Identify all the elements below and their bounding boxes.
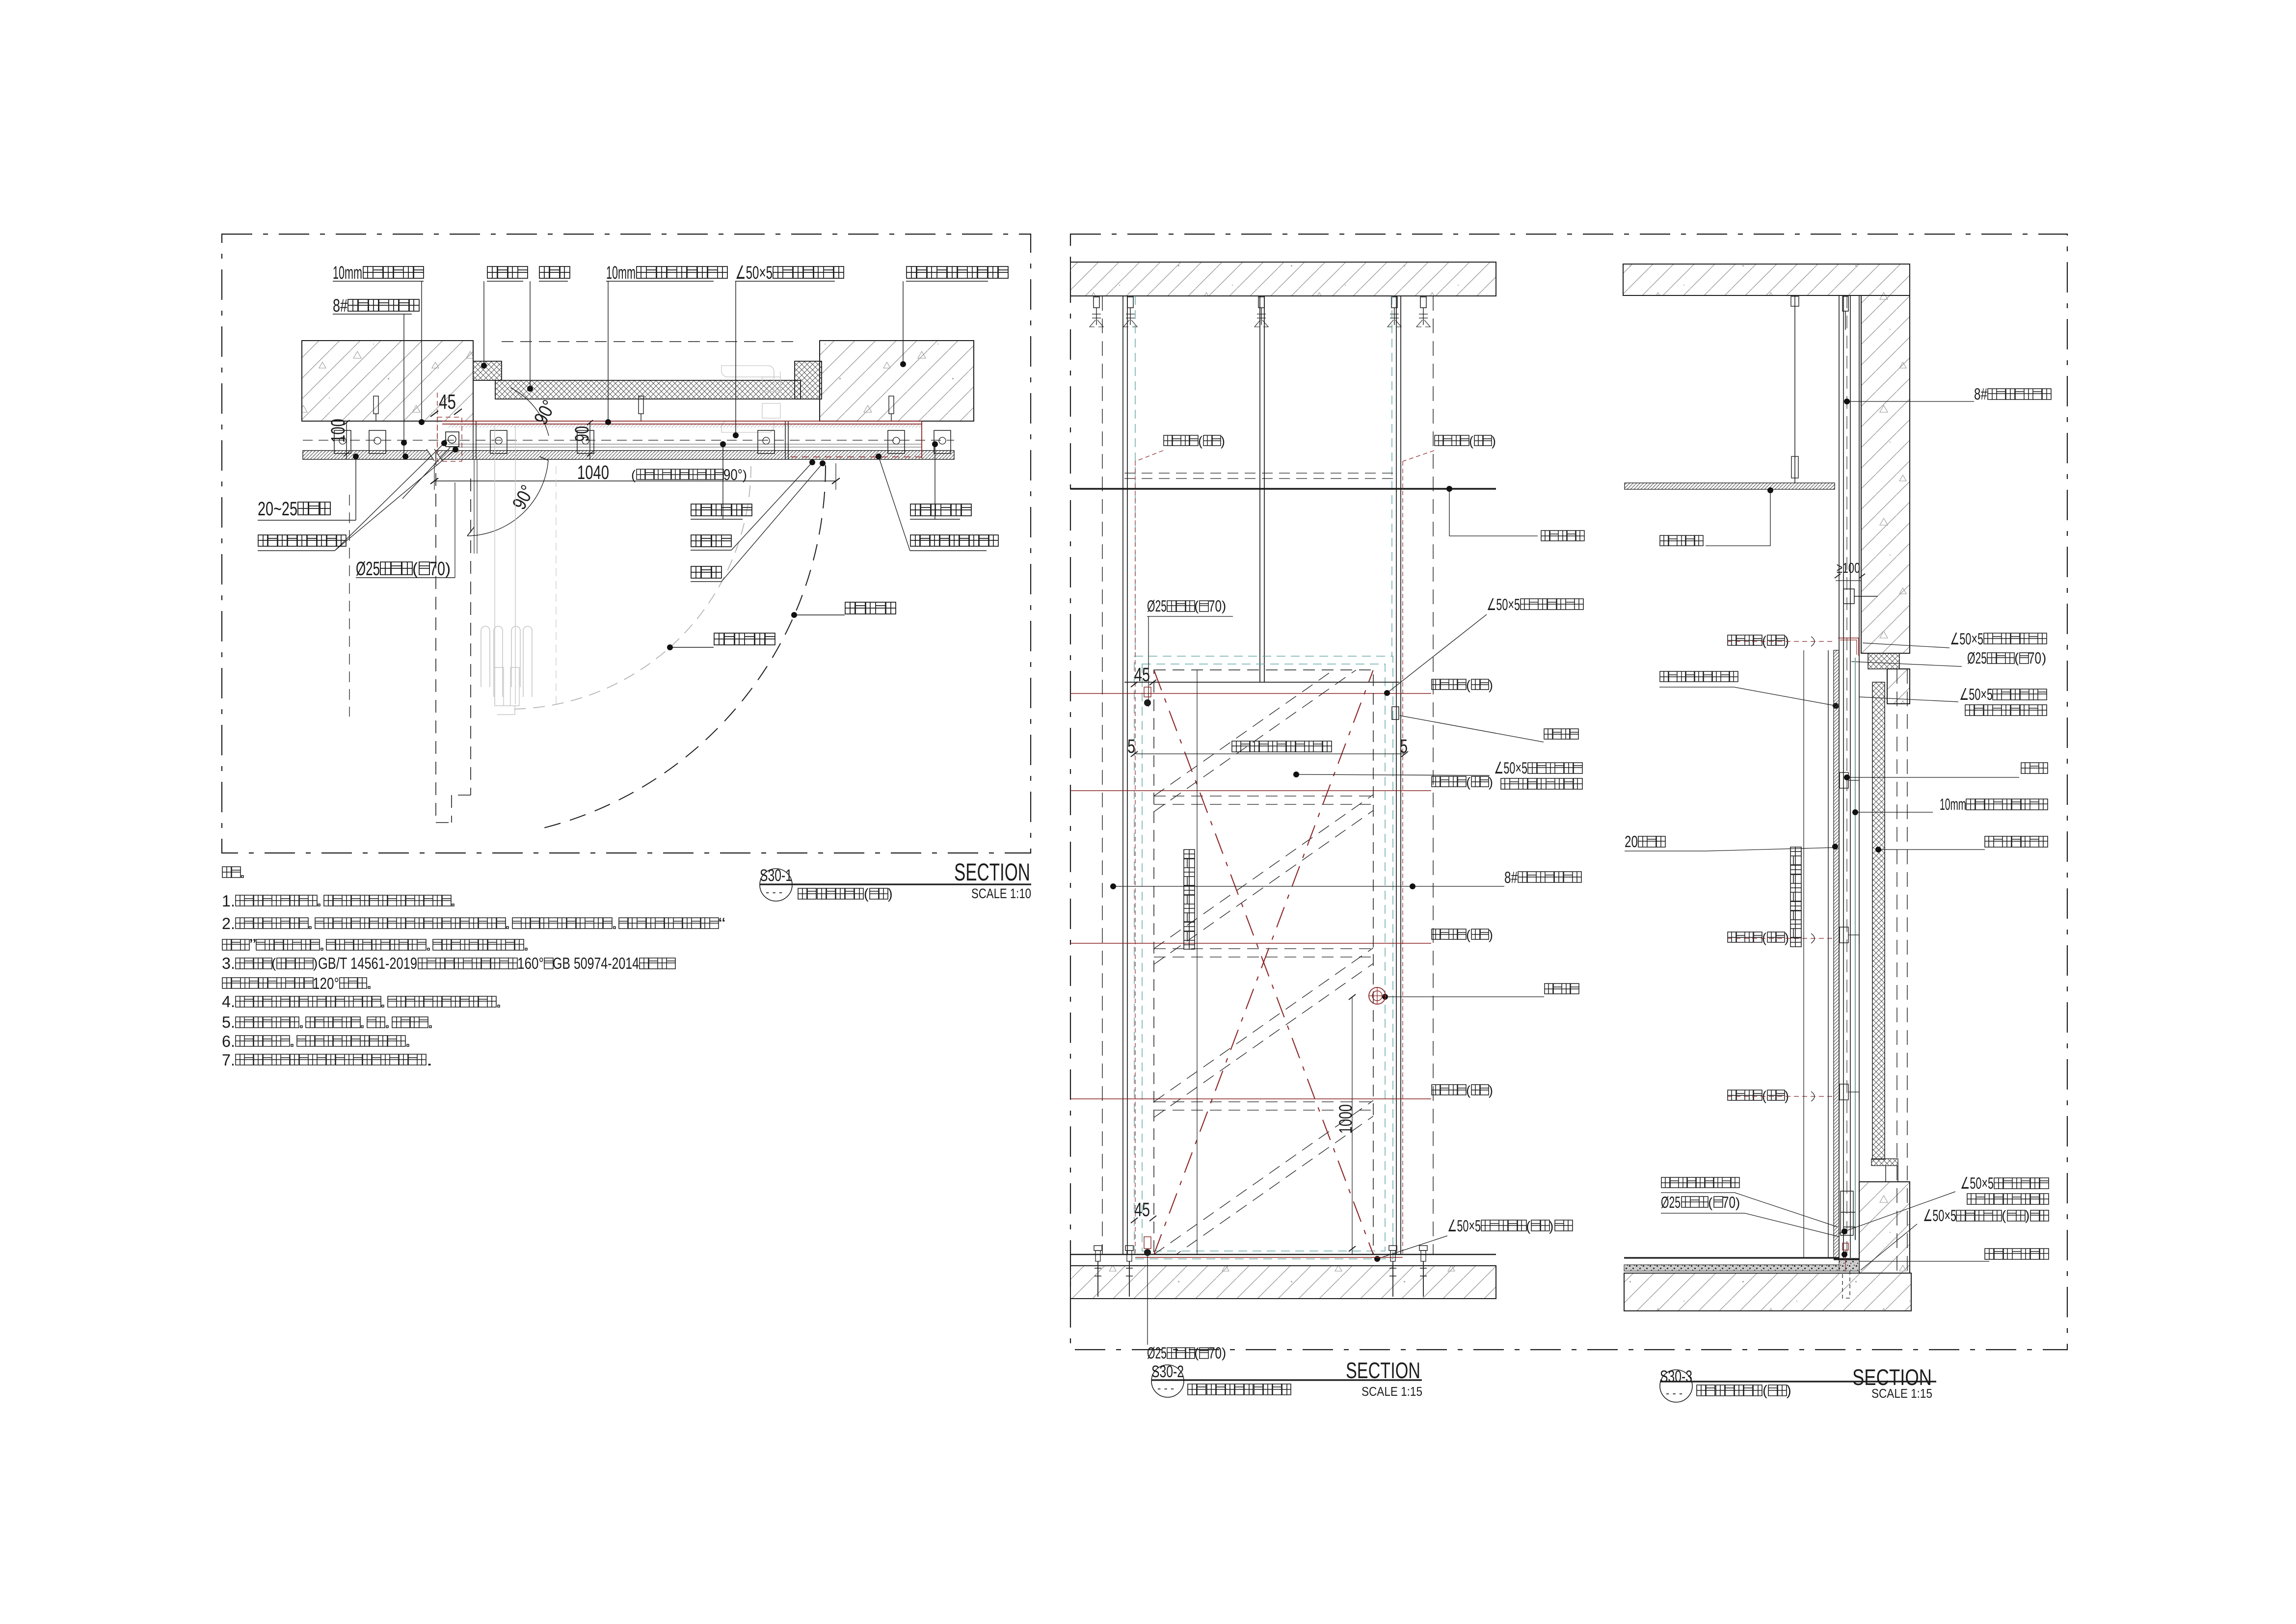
svg-text:(: ( <box>412 560 418 578</box>
svg-text:): ) <box>1785 1089 1789 1103</box>
svg-text:): ) <box>2025 1208 2029 1223</box>
svg-text:): ) <box>1222 598 1226 613</box>
svg-text:): ) <box>1489 775 1493 790</box>
svg-text:(: ( <box>1762 1383 1767 1399</box>
svg-text:GB 50974-2014: GB 50974-2014 <box>553 954 639 972</box>
svg-text:): ) <box>1549 1219 1553 1234</box>
svg-text:7.: 7. <box>222 1051 235 1069</box>
svg-text:): ) <box>1735 1195 1740 1210</box>
svg-text:): ) <box>445 560 451 578</box>
svg-text:(: ( <box>1466 928 1470 942</box>
svg-text:70: 70 <box>429 558 445 580</box>
svg-text:): ) <box>1787 1383 1791 1399</box>
svg-text:): ) <box>1489 928 1493 942</box>
svg-text:3.: 3. <box>222 954 235 972</box>
svg-text:): ) <box>1489 678 1493 692</box>
svg-text:SECTION: SECTION <box>1346 1358 1420 1383</box>
svg-text:): ) <box>888 886 893 902</box>
svg-text:): ) <box>743 468 747 482</box>
svg-text:Ø25: Ø25 <box>1147 597 1167 615</box>
svg-text:(: ( <box>1194 598 1199 613</box>
svg-text:- - -: - - - <box>1666 1387 1682 1399</box>
svg-text:”: ” <box>249 935 256 954</box>
svg-text:45: 45 <box>1134 1199 1150 1221</box>
svg-text:): ) <box>1785 931 1789 945</box>
svg-text:70: 70 <box>1722 1193 1735 1211</box>
svg-text:1040: 1040 <box>577 462 609 483</box>
svg-text:∠50×5: ∠50×5 <box>735 263 773 283</box>
svg-text:(: ( <box>1708 1195 1713 1210</box>
svg-text:2.: 2. <box>222 914 235 932</box>
svg-text:SECTION: SECTION <box>954 858 1030 886</box>
svg-text:): ) <box>1489 1083 1493 1098</box>
svg-text:100: 100 <box>327 419 349 443</box>
svg-text:∠50×5: ∠50×5 <box>1960 1174 1994 1192</box>
svg-text:(: ( <box>1194 1345 1199 1360</box>
svg-text:10mm: 10mm <box>333 263 362 283</box>
svg-text:∠50×5: ∠50×5 <box>1923 1206 1956 1225</box>
svg-text:(: ( <box>1198 434 1202 449</box>
svg-text:1000: 1000 <box>1335 1104 1356 1134</box>
svg-text:70: 70 <box>1208 1344 1222 1362</box>
svg-text:20: 20 <box>1625 832 1638 851</box>
svg-text:SCALE 1:15: SCALE 1:15 <box>1362 1384 1422 1399</box>
svg-text:(: ( <box>864 886 869 902</box>
svg-text:): ) <box>2042 650 2046 666</box>
svg-text:Ø25: Ø25 <box>1147 1344 1167 1362</box>
svg-text:): ) <box>1221 434 1225 449</box>
svg-text:4.: 4. <box>222 992 235 1011</box>
svg-text:GB/T 14561-2019: GB/T 14561-2019 <box>318 954 417 972</box>
svg-text:): ) <box>1222 1345 1226 1360</box>
svg-text:8#: 8# <box>1974 385 1987 403</box>
svg-text:S30-3: S30-3 <box>1660 1367 1692 1386</box>
svg-text:1.: 1. <box>222 892 235 910</box>
svg-text:(: ( <box>2014 650 2019 666</box>
svg-text:.: . <box>426 1051 433 1069</box>
svg-text:∠50×5: ∠50×5 <box>1950 630 1983 648</box>
svg-text:Ø25: Ø25 <box>1661 1193 1681 1211</box>
svg-text:5.: 5. <box>222 1013 235 1031</box>
svg-text:SCALE 1:10: SCALE 1:10 <box>971 886 1031 901</box>
svg-text:Ø25: Ø25 <box>356 558 380 580</box>
svg-text:70: 70 <box>1208 597 1222 615</box>
svg-text:∠50×5: ∠50×5 <box>1959 685 1993 703</box>
svg-text:- - -: - - - <box>766 886 782 898</box>
svg-text:20~25: 20~25 <box>258 498 297 520</box>
svg-text:45: 45 <box>439 390 456 413</box>
svg-text:5: 5 <box>1127 736 1135 757</box>
svg-text:(: ( <box>1469 434 1473 449</box>
svg-text:): ) <box>1492 434 1496 449</box>
svg-text:(: ( <box>271 956 276 971</box>
svg-text:6.: 6. <box>222 1032 235 1050</box>
svg-text:(: ( <box>631 468 636 482</box>
svg-text:): ) <box>1785 634 1789 648</box>
svg-text:8#: 8# <box>333 295 347 316</box>
svg-text:SCALE 1:15: SCALE 1:15 <box>1871 1386 1932 1401</box>
svg-text:∠50×5: ∠50×5 <box>1494 759 1527 777</box>
svg-text:(: ( <box>1762 634 1766 648</box>
svg-text:S30-2: S30-2 <box>1151 1362 1184 1381</box>
svg-text:): ) <box>313 956 318 971</box>
svg-text:(: ( <box>1762 931 1766 945</box>
svg-text:90: 90 <box>571 426 593 442</box>
svg-text:90°: 90° <box>723 466 743 483</box>
svg-text:8#: 8# <box>1504 868 1518 886</box>
svg-text:- - -: - - - <box>1157 1382 1174 1394</box>
svg-text:160°: 160° <box>517 954 544 972</box>
svg-text:∠50×5: ∠50×5 <box>1447 1217 1481 1235</box>
svg-text:70: 70 <box>2028 649 2041 667</box>
svg-text:(: ( <box>1466 1083 1470 1098</box>
svg-text:120°: 120° <box>313 974 339 992</box>
svg-text:(: ( <box>1466 678 1470 692</box>
svg-text:10mm: 10mm <box>1940 795 1966 813</box>
svg-text:5: 5 <box>1400 736 1408 757</box>
svg-text:S30-1: S30-1 <box>760 866 792 885</box>
svg-text:“: “ <box>719 914 725 932</box>
svg-text:(: ( <box>1762 1089 1766 1103</box>
svg-text:(: ( <box>1466 775 1470 790</box>
svg-text:∠50×5: ∠50×5 <box>1487 595 1520 613</box>
svg-text:(: ( <box>1526 1219 1531 1234</box>
svg-text:Ø25: Ø25 <box>1967 649 1987 667</box>
svg-text:10mm: 10mm <box>606 263 636 283</box>
svg-text:(: ( <box>2002 1208 2006 1223</box>
